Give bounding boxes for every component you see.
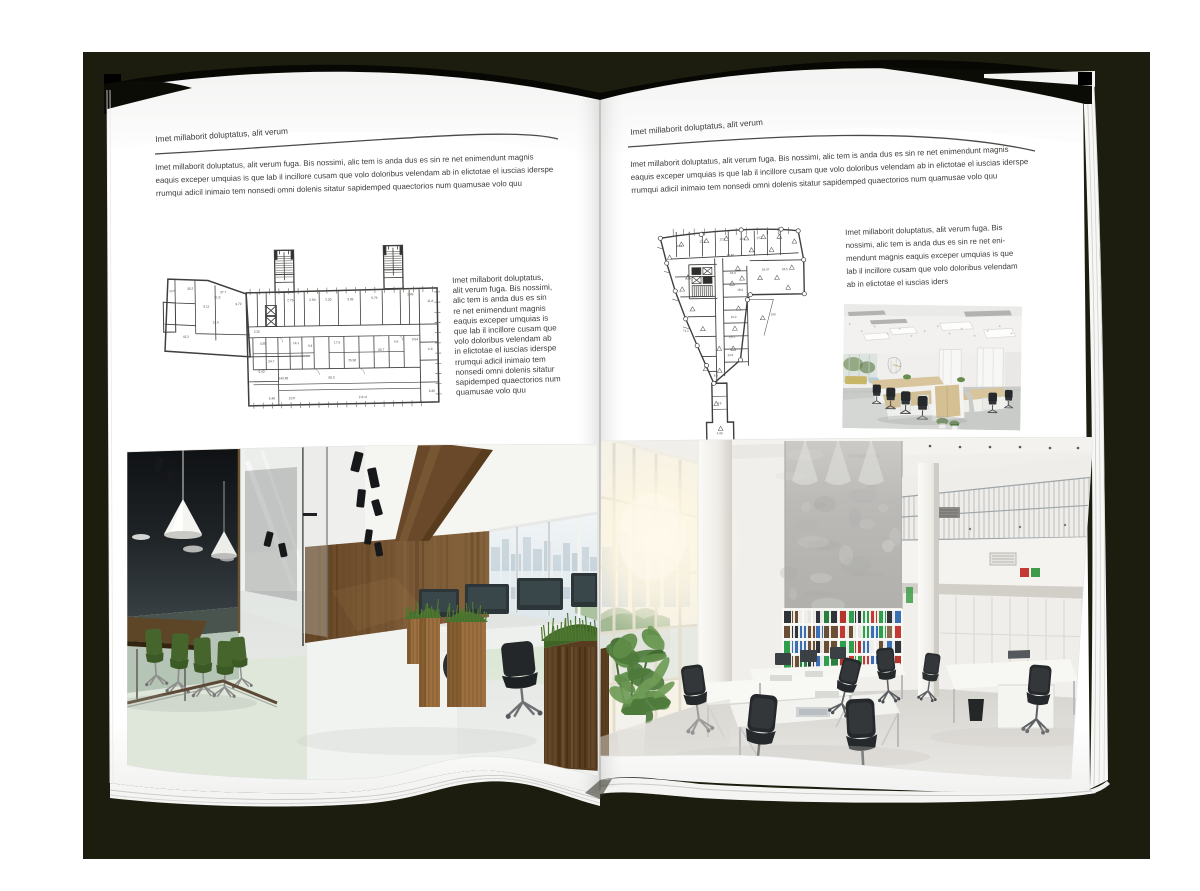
svg-text:2-й эт: 2-й эт [359,395,368,399]
svg-text:8.35: 8.35 [429,389,435,393]
svg-text:42.2: 42.2 [183,335,189,339]
svg-text:13.40: 13.40 [727,253,735,257]
svg-text:4.85: 4.85 [260,342,266,346]
svg-text:150: 150 [771,312,776,316]
svg-text:80.3: 80.3 [328,376,334,380]
svg-text:37.7: 37.7 [220,290,226,294]
svg-text:24.7: 24.7 [268,359,274,363]
svg-text:14.6: 14.6 [676,244,682,248]
svg-text:2.26: 2.26 [254,330,260,334]
svg-text:25.50: 25.50 [348,358,356,362]
svg-text:1.45: 1.45 [407,292,413,296]
svg-text:5.48: 5.48 [269,396,275,400]
svg-text:18.5: 18.5 [782,267,788,271]
svg-text:0.54: 0.54 [412,337,418,341]
svg-text:9.9: 9.9 [717,401,722,405]
svg-text:5.43: 5.43 [258,370,264,374]
svg-text:12.2: 12.2 [731,315,737,319]
svg-text:13.6: 13.6 [213,320,219,324]
svg-text:16.97: 16.97 [762,267,770,271]
svg-text:12.9: 12.9 [719,237,725,241]
svg-text:13.9: 13.9 [727,353,733,357]
svg-text:15.1: 15.1 [729,335,735,339]
svg-text:6.8: 6.8 [428,347,433,351]
svg-text:18.9: 18.9 [737,288,743,292]
svg-text:9.4: 9.4 [308,344,313,348]
svg-text:21.8: 21.8 [214,295,220,299]
svg-text:17.5: 17.5 [334,340,340,344]
svg-text:4.99: 4.99 [717,431,723,435]
svg-text:12.6: 12.6 [169,289,175,293]
svg-text:30.2: 30.2 [187,287,193,291]
svg-text:3.99: 3.99 [347,297,353,301]
svg-text:143.88: 143.88 [278,376,288,380]
svg-text:2.90: 2.90 [309,298,315,302]
svg-text:11.8: 11.8 [427,299,433,303]
svg-text:13.6: 13.6 [739,237,745,241]
svg-text:2.30: 2.30 [325,298,331,302]
svg-text:2.75: 2.75 [287,298,293,302]
svg-text:30.7: 30.7 [378,348,384,352]
svg-text:16.3: 16.3 [730,271,736,275]
svg-text:3.72: 3.72 [235,302,241,306]
svg-text:5.79: 5.79 [371,296,377,300]
svg-text:6.3: 6.3 [714,373,719,377]
svg-text:4.6: 4.6 [394,340,399,344]
svg-text:10.8: 10.8 [289,396,295,400]
svg-text:14.2: 14.2 [756,235,762,239]
svg-text:14.1: 14.1 [293,341,299,345]
svg-text:13.1: 13.1 [699,239,705,243]
svg-text:5.11: 5.11 [203,304,209,308]
svg-text:71.1: 71.1 [683,329,689,333]
